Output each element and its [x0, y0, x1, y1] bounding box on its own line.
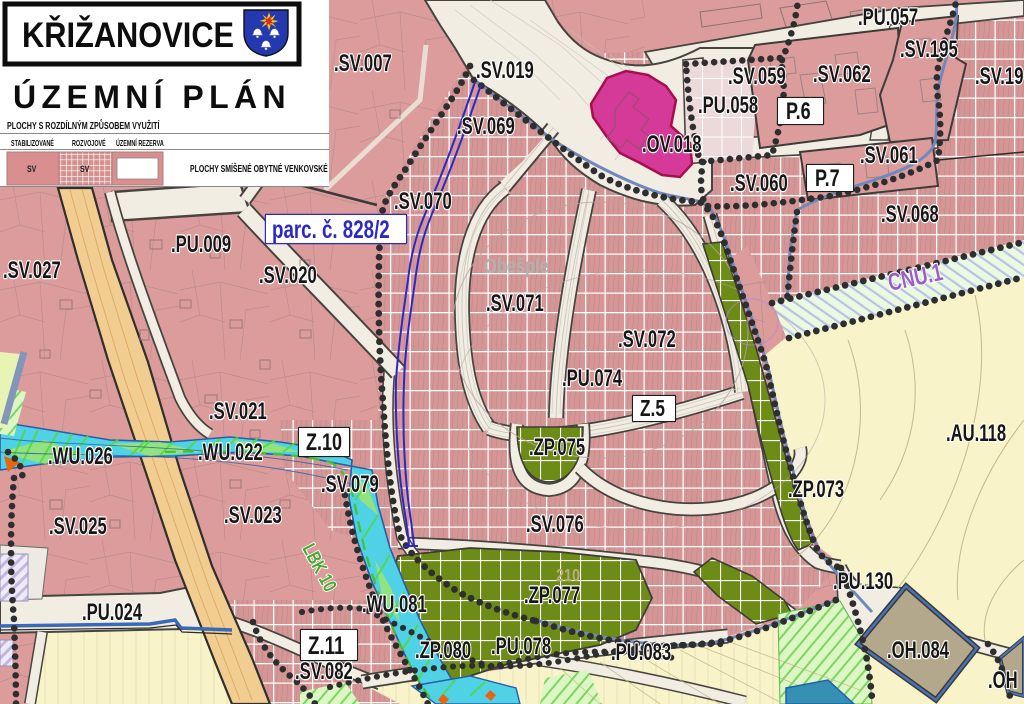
svg-text:SV: SV [27, 164, 37, 174]
svg-text:.PU.024: .PU.024 [82, 599, 142, 626]
svg-text:parc. č. 828/2: parc. č. 828/2 [272, 215, 390, 243]
svg-text:.OH.084: .OH.084 [887, 637, 949, 664]
svg-text:.PU.078: .PU.078 [491, 633, 551, 660]
svg-text:.WU.022: .WU.022 [198, 439, 263, 466]
svg-text:.SV.061: .SV.061 [860, 142, 918, 169]
svg-text:.PU.009: .PU.009 [171, 231, 231, 258]
svg-text:.PU.058: .PU.058 [698, 92, 758, 119]
svg-text:ÚZEMNÍ PLÁN: ÚZEMNÍ PLÁN [13, 79, 291, 115]
svg-text:P.7: P.7 [815, 166, 840, 192]
svg-text:.SV.070: .SV.070 [394, 188, 452, 215]
svg-text:PLOCHY SMÍŠENÉ OBYTNÉ VENKOVSK: PLOCHY SMÍŠENÉ OBYTNÉ VENKOVSKÉ [190, 161, 328, 174]
svg-text:.PU.074: .PU.074 [562, 365, 622, 392]
svg-text:.WU.081: .WU.081 [362, 591, 427, 618]
svg-text:.ZP.077: .ZP.077 [524, 582, 580, 609]
svg-text:PLOCHY S ROZDÍLNÝM ZPŮSOBEM VY: PLOCHY S ROZDÍLNÝM ZPŮSOBEM VYUŽITÍ [7, 118, 160, 131]
svg-text:.SV.025: .SV.025 [49, 513, 107, 540]
svg-text:.OH: .OH [988, 667, 1018, 694]
svg-text:SV: SV [80, 164, 90, 174]
svg-text:.SV.062: .SV.062 [813, 61, 871, 88]
svg-text:.WU.026: .WU.026 [48, 443, 113, 470]
svg-text:STABILIZOVANÉ: STABILIZOVANÉ [11, 138, 54, 149]
svg-text:.SV.079: .SV.079 [321, 471, 379, 498]
svg-text:KŘIŽANOVICE: KŘIŽANOVICE [22, 15, 234, 54]
svg-text:Obešple: Obešple [484, 254, 549, 277]
svg-text:.SV.059: .SV.059 [728, 63, 786, 90]
svg-text:.SV.082: .SV.082 [295, 658, 353, 685]
svg-text:.OV.018: .OV.018 [642, 131, 702, 158]
svg-text:Z.10: Z.10 [306, 430, 342, 456]
svg-text:.SV.021: .SV.021 [209, 398, 267, 425]
svg-text:.ZP.073: .ZP.073 [788, 476, 844, 503]
svg-text:.ZP.075: .ZP.075 [529, 434, 585, 461]
svg-text:ROZVOJOVÉ: ROZVOJOVÉ [72, 138, 106, 149]
svg-text:.SV.195: .SV.195 [900, 36, 958, 63]
svg-text:.SV.060: .SV.060 [730, 170, 788, 197]
svg-text:.PU.057: .PU.057 [858, 4, 918, 31]
svg-text:.SV.068: .SV.068 [881, 201, 939, 228]
svg-text:.AU.118: .AU.118 [946, 420, 1006, 447]
svg-text:.SV.071: .SV.071 [486, 290, 544, 317]
svg-text:.PU.083: .PU.083 [611, 639, 671, 666]
svg-text:.SV.023: .SV.023 [224, 502, 282, 529]
svg-text:.SV.072: .SV.072 [618, 326, 676, 353]
svg-text:Z.5: Z.5 [640, 397, 665, 422]
svg-text:.SV.076: .SV.076 [526, 511, 584, 538]
svg-text:.SV.019: .SV.019 [476, 57, 534, 84]
svg-text:.ZP.080: .ZP.080 [415, 637, 471, 664]
svg-text:.SV.020: .SV.020 [259, 262, 317, 289]
svg-text:.SV.027: .SV.027 [3, 257, 61, 284]
svg-text:.PU.130: .PU.130 [833, 568, 893, 595]
svg-text:.SV.069: .SV.069 [457, 113, 515, 140]
svg-text:.SV.007: .SV.007 [334, 50, 392, 77]
svg-text:Z.11: Z.11 [308, 631, 344, 659]
svg-text:ÚZEMNÍ REZERVA: ÚZEMNÍ REZERVA [116, 138, 164, 149]
svg-text:P.6: P.6 [786, 99, 811, 125]
svg-text:.SV.19: .SV.19 [975, 63, 1023, 90]
